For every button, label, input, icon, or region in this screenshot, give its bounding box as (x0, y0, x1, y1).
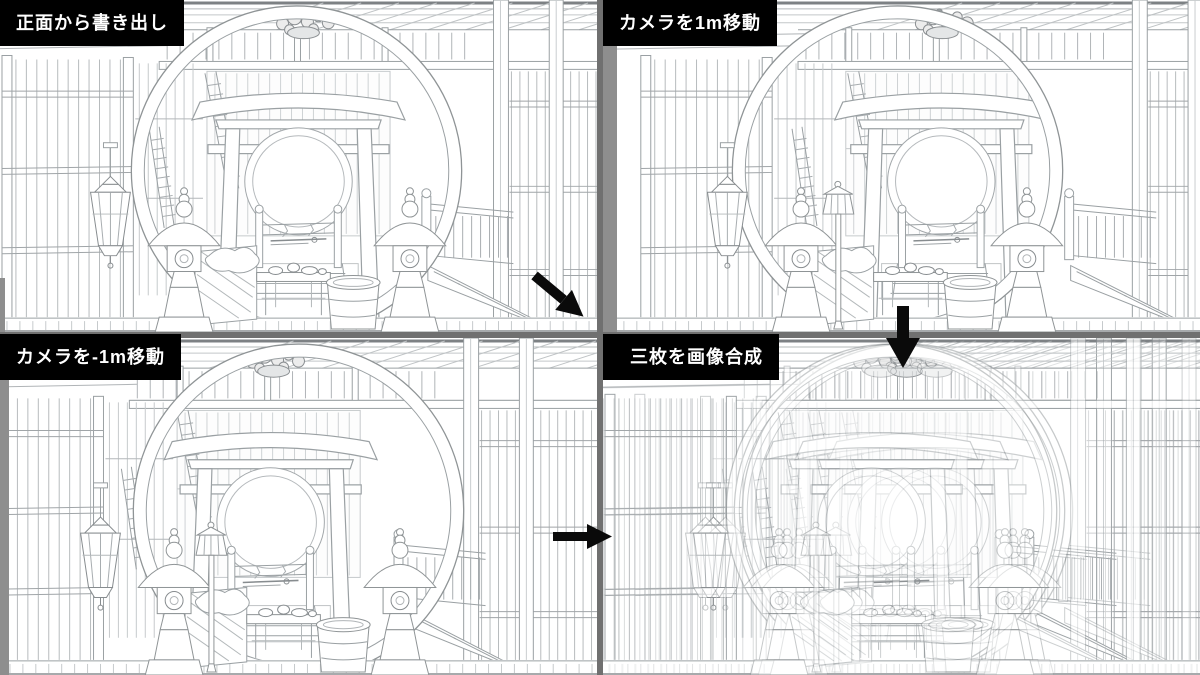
panel-front-view (0, 0, 597, 332)
panel-composite (603, 338, 1200, 675)
panel-label-composite: 三枚を画像合成 (603, 334, 779, 380)
panel-label-front: 正面から書き出し (0, 0, 184, 46)
arrow-right-icon (553, 524, 612, 549)
lineart-render-minus1m (0, 338, 597, 675)
panel-camera-plus-1m (603, 0, 1200, 332)
panel-camera-minus-1m (0, 338, 597, 675)
foreground-pillar (0, 338, 9, 675)
lineart-render-composite (603, 338, 1200, 675)
foreground-pillar (0, 278, 5, 332)
lineart-render-plus1m (603, 0, 1200, 332)
arrow-down-icon (886, 306, 920, 368)
lineart-render-front (0, 0, 597, 332)
foreground-pillar (603, 46, 617, 332)
image-grid: 正面から書き出し カメラを1m移動 カメラを-1m移動 三枚を画像合成 (0, 0, 1200, 675)
panel-label-plus1m: カメラを1m移動 (603, 0, 777, 46)
panel-label-minus1m: カメラを-1m移動 (0, 334, 181, 380)
